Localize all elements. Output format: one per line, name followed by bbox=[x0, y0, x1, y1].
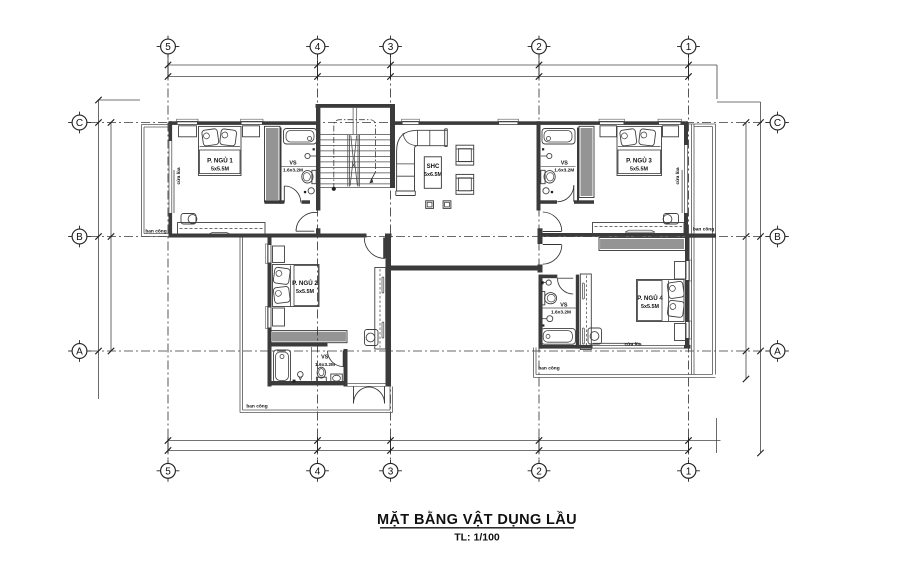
svg-text:1.6x3.2M: 1.6x3.2M bbox=[283, 168, 303, 174]
svg-text:P. NGỦ 4: P. NGỦ 4 bbox=[637, 295, 663, 302]
svg-text:B: B bbox=[76, 232, 83, 243]
svg-text:C: C bbox=[76, 118, 83, 129]
svg-text:5x5.5M: 5x5.5M bbox=[630, 166, 648, 172]
svg-text:1.6x3.2M: 1.6x3.2M bbox=[554, 168, 574, 174]
svg-text:P. NGỦ 1: P. NGỦ 1 bbox=[207, 158, 233, 165]
svg-text:SHC: SHC bbox=[427, 164, 440, 170]
svg-text:TL: 1/100: TL: 1/100 bbox=[454, 532, 500, 544]
svg-text:5: 5 bbox=[165, 42, 171, 53]
svg-text:cửa lùa: cửa lùa bbox=[176, 167, 182, 184]
svg-text:4: 4 bbox=[315, 42, 321, 53]
svg-text:P. NGỦ 2: P. NGỦ 2 bbox=[292, 280, 318, 287]
svg-text:1.6x3.2M: 1.6x3.2M bbox=[315, 362, 335, 368]
svg-text:5x5.5M: 5x5.5M bbox=[211, 166, 229, 172]
svg-text:cửa lùa: cửa lùa bbox=[624, 341, 641, 347]
svg-text:2: 2 bbox=[536, 466, 542, 477]
svg-text:B: B bbox=[774, 232, 781, 243]
svg-text:1: 1 bbox=[686, 466, 692, 477]
svg-text:1: 1 bbox=[686, 42, 692, 53]
svg-text:5x5.5M: 5x5.5M bbox=[641, 304, 659, 310]
svg-text:5x6.5M: 5x6.5M bbox=[424, 172, 442, 178]
svg-text:C: C bbox=[774, 118, 781, 129]
svg-text:ban công: ban công bbox=[538, 366, 559, 372]
svg-text:3: 3 bbox=[388, 42, 394, 53]
svg-text:ban công: ban công bbox=[145, 228, 166, 234]
svg-text:1.6x3.2M: 1.6x3.2M bbox=[551, 309, 571, 315]
svg-text:MẶT BẰNG VẬT DỤNG LẦU: MẶT BẰNG VẬT DỤNG LẦU bbox=[377, 510, 577, 528]
svg-text:3: 3 bbox=[388, 466, 394, 477]
svg-text:4: 4 bbox=[315, 466, 321, 477]
svg-text:VS: VS bbox=[289, 161, 297, 167]
svg-text:VS: VS bbox=[321, 354, 329, 360]
svg-text:VS: VS bbox=[560, 302, 568, 308]
svg-text:cửa lùa: cửa lùa bbox=[675, 167, 681, 184]
svg-text:ban công: ban công bbox=[693, 227, 714, 233]
svg-text:P. NGỦ 3: P. NGỦ 3 bbox=[626, 158, 652, 165]
svg-text:VS: VS bbox=[561, 161, 569, 167]
svg-text:5x5.5M: 5x5.5M bbox=[296, 289, 314, 295]
svg-text:A: A bbox=[774, 347, 781, 358]
svg-text:5: 5 bbox=[165, 466, 171, 477]
svg-text:A: A bbox=[76, 347, 83, 358]
svg-text:ban công: ban công bbox=[246, 404, 267, 410]
svg-text:2: 2 bbox=[536, 42, 542, 53]
